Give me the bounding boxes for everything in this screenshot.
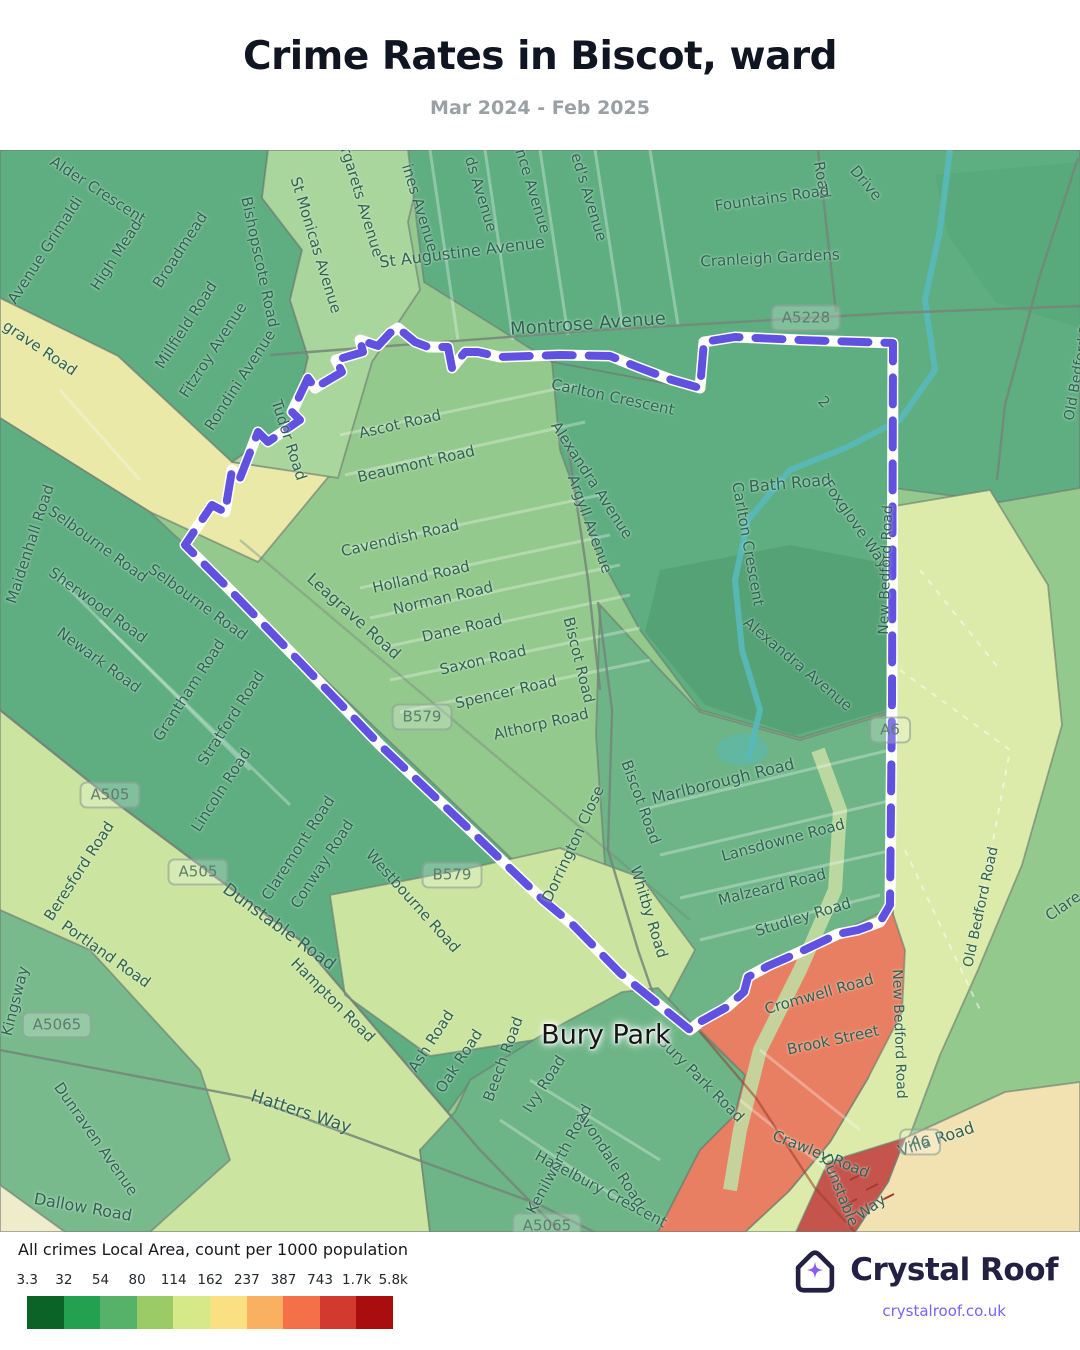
legend-swatch (356, 1296, 393, 1329)
place-label: Bury Park (541, 1020, 671, 1051)
legend-swatch (320, 1296, 357, 1329)
page-title: Crime Rates in Biscot, ward (0, 34, 1080, 79)
branding: Crystal Roof crystalroof.co.uk (758, 1242, 1058, 1320)
legend-tick: 32 (46, 1272, 83, 1288)
legend-tick: 54 (82, 1272, 119, 1288)
map-place-labels: Bury Park (0, 150, 1080, 1232)
crystal-roof-house-icon (788, 1242, 842, 1298)
legend-title: All crimes Local Area, count per 1000 po… (18, 1240, 408, 1259)
sparkle-icon (807, 1262, 824, 1279)
footer: All crimes Local Area, count per 1000 po… (0, 1232, 1080, 1350)
crime-rate-map: Alder CrescentAvenue GrimaldiHigh MeadBr… (0, 150, 1080, 1232)
legend-tick: 5.8k (375, 1272, 412, 1288)
legend-tick: 3.3 (9, 1272, 46, 1288)
legend-tick: 387 (265, 1272, 302, 1288)
legend-tick: 1.7k (338, 1272, 375, 1288)
page: Crime Rates in Biscot, ward Mar 2024 - F… (0, 0, 1080, 1350)
brand-url-link[interactable]: crystalroof.co.uk (882, 1302, 1006, 1320)
legend-tick: 162 (192, 1272, 229, 1288)
legend-swatch (210, 1296, 247, 1329)
date-range: Mar 2024 - Feb 2025 (0, 97, 1080, 119)
legend-color-scale (27, 1296, 393, 1329)
legend-tick: 237 (229, 1272, 266, 1288)
legend-swatch (247, 1296, 284, 1329)
legend-tick: 114 (155, 1272, 192, 1288)
legend-tick: 743 (302, 1272, 339, 1288)
report-header: Crime Rates in Biscot, ward Mar 2024 - F… (0, 0, 1080, 150)
legend-ticks: 3.33254801141622373877431.7k5.8k (9, 1272, 412, 1288)
crime-legend: All crimes Local Area, count per 1000 po… (18, 1240, 408, 1259)
legend-swatch (173, 1296, 210, 1329)
legend-swatch (27, 1296, 64, 1329)
legend-swatch (100, 1296, 137, 1329)
brand-name: Crystal Roof (850, 1252, 1058, 1288)
legend-swatch (283, 1296, 320, 1329)
legend-swatch (64, 1296, 101, 1329)
legend-tick: 80 (119, 1272, 156, 1288)
legend-swatch (137, 1296, 174, 1329)
